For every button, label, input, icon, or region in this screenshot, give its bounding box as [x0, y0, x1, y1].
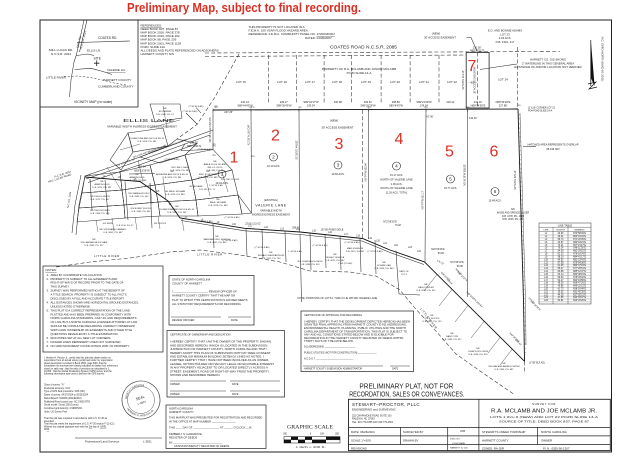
svg-text:PRELIMINARY PLAT, NOT FOR: PRELIMINARY PLAT, NOT FOR [359, 383, 453, 390]
svg-text:N85°12'37"E: N85°12'37"E [573, 271, 587, 273]
svg-text:D.B. 4067, PG. 862: D.B. 4067, PG. 862 [208, 242, 228, 244]
svg-text:VARIABLE WIDTH: VARIABLE WIDTH [260, 209, 282, 213]
svg-text:23.60' (21)'.02': 23.60' (21)'.02' [245, 223, 261, 226]
svg-text:HARNETT COUNTY SUBDIVISION ADM: HARNETT COUNTY SUBDIVISION ADMINISTRATOR [304, 368, 362, 371]
svg-text:S57°21'47"E: S57°21'47"E [573, 245, 587, 247]
svg-text:83.84': 83.84' [438, 252, 445, 255]
svg-text:(7' GP ELF AD): (7' GP ELF AD) [345, 241, 360, 244]
svg-text:43.87: 43.87 [558, 242, 565, 244]
svg-text:BEARING: BEARING [575, 228, 585, 231]
svg-text:L-3821: L-3821 [143, 440, 152, 444]
svg-text:AMMON ELLIS: AMMON ELLIS [130, 176, 145, 179]
svg-text:209.17': 209.17' [280, 100, 289, 104]
svg-text:THIS MAP/PLAT WAS PRESENTED FO: THIS MAP/PLAT WAS PRESENTED FOR REGISTRA… [169, 415, 262, 419]
svg-text:VALERIE LN.: VALERIE LN. [107, 68, 126, 72]
svg-text:N0°7′4″W 531.17': N0°7′4″W 531.17' [422, 190, 425, 209]
svg-text:N31°42'35"E: N31°42'35"E [573, 291, 587, 293]
svg-text:417.03' ALUM CAP: 417.03' ALUM CAP [248, 124, 251, 145]
svg-text:PLAT TO WHICH THIS CERTIFICATI: PLAT TO WHICH THIS CERTIFICATION IS AFFI… [172, 298, 248, 302]
svg-text:I, ______________________ REV: I, ______________________ REVIEW OFFICER… [172, 290, 237, 294]
svg-text:LENGTH: LENGTH [556, 229, 565, 231]
svg-text:2: 2 [271, 128, 280, 145]
svg-text:6: 6 [490, 143, 499, 160]
svg-text:OWNER: OWNER [541, 439, 552, 443]
svg-text:D.B. 3852, PG. 687: D.B. 3852, PG. 687 [104, 232, 124, 234]
svg-text:D.B. 4021, PG 887: D.B. 4021, PG 887 [346, 251, 365, 253]
svg-text:30' ACCESS EASEMENT: 30' ACCESS EASEMENT [322, 126, 354, 130]
svg-text:DWG. NO.: DWG. NO. [450, 439, 461, 441]
svg-text:VICINITY MAP (no scale): VICINITY MAP (no scale) [74, 100, 112, 104]
svg-text:I, Herbert H. Proctor Jr., cer: I, Herbert H. Proctor Jr., certify that … [44, 357, 112, 360]
svg-text:boundaries not surveyed are cl: boundaries not surveyed are clearly indi… [44, 365, 119, 368]
svg-text:D.B. 1346, PG. 502: D.B. 1346, PG. 502 [91, 213, 111, 215]
svg-text:45.86: 45.86 [558, 286, 565, 288]
svg-text:41.73: 41.73 [558, 289, 565, 291]
svg-text:N0°7′4″W 502.64': N0°7′4″W 502.64' [365, 162, 368, 181]
svg-text:S2°51′8″E 575.15': S2°51′8″E 575.15' [514, 170, 517, 190]
svg-text:N72°58'33"E: N72°58'33"E [573, 233, 587, 235]
svg-text:D.B. 893, PG. 86: D.B. 893, PG. 86 [207, 170, 224, 172]
svg-text:N71°22'45"E: N71°22'45"E [573, 239, 587, 241]
svg-text:Units: US Survey Feet: Units: US Survey Feet [44, 410, 67, 413]
svg-text:JESSEY JESSICA: JESSEY JESSICA [326, 256, 345, 259]
svg-text:46.01: 46.01 [558, 236, 565, 238]
svg-text:EIP'S: EIP'S [250, 107, 256, 109]
svg-text:CUMBERLAND COUNTY: CUMBERLAND COUNTY [98, 85, 134, 89]
svg-text:REGISTER OF DEEDS: REGISTER OF DEEDS [169, 435, 197, 439]
svg-text:76.24: 76.24 [558, 248, 565, 250]
svg-text:N74°45′10″E: N74°45′10″E [450, 261, 464, 264]
svg-text:N58°47'26"E: N58°47'26"E [573, 283, 587, 285]
svg-text:59.74: 59.74 [558, 239, 565, 241]
svg-text:38,199 SF±: 38,199 SF± [546, 147, 560, 151]
svg-text:N89°36′18″E: N89°36′18″E [496, 100, 511, 104]
svg-text:ENGINEERING and SURVEYING: ENGINEERING and SURVEYING [352, 408, 396, 412]
svg-text:5: 5 [445, 143, 454, 160]
svg-text:N84°41'17"E: N84°41'17"E [573, 257, 587, 259]
svg-text:DATE: DATE [392, 368, 399, 371]
svg-text:(7' GP ELF AD): (7' GP ELF AD) [255, 246, 270, 249]
svg-text:911 ADDRESSING ______________: 911 ADDRESSING _______________________ [304, 346, 356, 349]
svg-text:N83°13′26″W: N83°13′26″W [134, 168, 150, 172]
svg-text:P.I.N.: 0555-50-1307: P.I.N.: 0555-50-1307 [543, 447, 570, 451]
svg-text:63.14: 63.14 [558, 274, 565, 276]
svg-text:D.B. 1971, PG. 762: D.B. 1971, PG. 762 [423, 321, 443, 323]
svg-text:SOUTH OF VALERIE LANE: SOUTH OF VALERIE LANE [380, 186, 413, 190]
svg-text:209.61': 209.61' [364, 100, 373, 104]
svg-text:1 inch = 200 ft.: 1 inch = 200 ft. [296, 445, 326, 449]
svg-text:NOTE: PORTIONS OF LOTS 1 THRU: NOTE: PORTIONS OF LOTS 1 THRU 6 LIE WITH… [298, 296, 378, 300]
svg-text:D.B. 1985, PG. 660: D.B. 1985, PG. 660 [221, 179, 240, 181]
svg-text:N0°16′19″W 555.00': N0°16′19″W 555.00' [464, 164, 467, 186]
svg-text:61.45: 61.45 [558, 265, 565, 267]
svg-text:60.88: 60.88 [558, 271, 565, 273]
svg-text:RONALD SHEPPARDSON: RONALD SHEPPARDSON [258, 254, 285, 257]
svg-text:RECORDATION, SALES OR CONVEYAN: RECORDATION, SALES OR CONVEYANCES. [349, 392, 464, 399]
svg-text:ED PARKER: ED PARKER [159, 110, 172, 113]
svg-text:30' ACCESS EASEMENT: 30' ACCESS EASEMENT [424, 35, 456, 39]
svg-text:IPS: IPS [212, 155, 216, 157]
svg-text:10.60 ACS.: 10.60 ACS. [331, 172, 344, 176]
svg-text:SURVEY FOR: SURVEY FOR [532, 402, 556, 406]
svg-text:LINE: LINE [544, 229, 549, 231]
svg-text:LITTLE RIVER: LITTLE RIVER [94, 254, 120, 258]
svg-text:JOHNSTONE AND NICOLE ELLIS: JOHNSTONE AND NICOLE ELLIS [130, 137, 164, 140]
svg-text:NORTH CAROLINA: NORTH CAROLINA [541, 430, 567, 434]
svg-text:ASSISTANT/DEPUTY REGISTER OF D: ASSISTANT/DEPUTY REGISTER OF DEEDS [174, 444, 230, 448]
svg-text:(2' & W. CORNER LOT 23: (2' & W. CORNER LOT 23 [528, 108, 556, 110]
svg-text:ELLIS LN.: ELLIS LN. [87, 49, 101, 53]
svg-text:JOHNSTONE AND NICOLE ELLIS: JOHNSTONE AND NICOLE ELLIS [160, 208, 194, 211]
svg-text:NORTH OF VALERIE LANE: NORTH OF VALERIE LANE [380, 177, 413, 181]
svg-text:STEWART'S CREEK TOWNSHIP: STEWART'S CREEK TOWNSHIP [482, 430, 526, 434]
svg-text:TEL. 919 779-1855 FAX 919: TEL. 919 779-1855 FAX 919 779-1661 [352, 421, 394, 424]
svg-text:208.83': 208.83' [392, 100, 401, 104]
svg-text:JOSEPH SOLOMON: JOSEPH SOLOMON [468, 351, 489, 353]
svg-text:N23°23'26"E: N23°23'26"E [573, 300, 587, 302]
svg-text:JO-MCLAMB: JO-MCLAMB [452, 442, 465, 445]
svg-text:Datum/Epoch: NAD83 (201: Datum/Epoch: NAD83 (2011/E2010) [44, 397, 82, 400]
svg-text:OWNER: OWNER [170, 393, 180, 396]
svg-text:11.26 ACS. TOTAL: 11.26 ACS. TOTAL [386, 191, 408, 195]
svg-text:432.13': 432.13' [241, 100, 250, 104]
svg-text:N89°36′11″E: N89°36′11″E [470, 49, 485, 53]
svg-text:LOT 19: LOT 19 [361, 80, 371, 84]
svg-text:2.: 2. [47, 277, 50, 281]
svg-text:62.33: 62.33 [558, 254, 565, 256]
svg-text:DRAWN BY: DRAWN BY [403, 439, 419, 443]
svg-text:noted on said map ; that the r: noted on said map ; that the ratio of pr… [44, 367, 110, 370]
svg-text:SITE: SITE [94, 57, 102, 61]
svg-text:M.B. 2016, PG. 202: M.B. 2016, PG. 202 [503, 218, 525, 221]
svg-text:EXISTENCE OF AND/OR LOCATION N: EXISTENCE OF AND/OR LOCATION NOT VERIFIE… [514, 65, 581, 69]
svg-text:R.A. MCLAMB AND JOE MCLAMB JR.: R.A. MCLAMB AND JOE MCLAMB JR. [491, 409, 597, 415]
svg-text:PC#D SLIDE 14-A: PC#D SLIDE 14-A [347, 71, 372, 75]
svg-text:N/F PHILLIS SMITH: N/F PHILLIS SMITH [90, 196, 110, 198]
svg-text:STATE OF NORTH CAROLINA: STATE OF NORTH CAROLINA [172, 278, 211, 282]
svg-text:2024.: 2024. [44, 429, 50, 431]
svg-text:59.63: 59.63 [558, 277, 565, 279]
svg-text:PART OF: PART OF [399, 270, 409, 273]
svg-text:WILLIAM AND ANNIE FOWLER: WILLIAM AND ANNIE FOWLER [488, 365, 520, 368]
svg-text:SURVEYED BY: SURVEYED BY [403, 430, 424, 434]
svg-text:NOTES:: NOTES: [46, 268, 57, 272]
svg-text:LOT 20: LOT 20 [390, 80, 400, 84]
svg-text:SHOWN AND DESCRIBED HEREON.: SHOWN AND DESCRIBED HEREON. [170, 373, 220, 377]
svg-text:N.C.D.O.T. __________________: N.C.D.O.T. ____________________________ [304, 358, 354, 361]
svg-text:Professional Land Surveyor: Professional Land Surveyor [85, 440, 119, 444]
svg-text:58.10: 58.10 [558, 257, 565, 259]
svg-text:D.B. 3476, PG. 381: D.B. 3476, PG. 381 [163, 177, 183, 179]
svg-text:139.34': 139.34' [307, 104, 316, 108]
svg-text:(EXISTING): (EXISTING) [264, 198, 278, 202]
svg-text:D.B. 2096, PG. 519: D.B. 2096, PG. 519 [469, 354, 489, 356]
svg-text:supervision from an actual sur: supervision from an actual survey perfor… [44, 359, 113, 362]
svg-text:WILLIAM AND ALICE HAIR: WILLIAM AND ALICE HAIR [81, 241, 108, 244]
svg-text:COUNTY OF HARNETT: COUNTY OF HARNETT [172, 282, 202, 286]
svg-text:CERTIFICATE OF APPROVAL FOR: CERTIFICATE OF APPROVAL FOR RECORDING [304, 313, 362, 317]
svg-text:LOT 22: LOT 22 [447, 80, 457, 84]
svg-text:15.49 ACS.: 15.49 ACS. [488, 199, 501, 203]
svg-text:D.B. 1072, PG. 867: D.B. 1072, PG. 867 [91, 199, 111, 201]
svg-text:N80°48'15"E: N80°48'15"E [573, 274, 587, 276]
svg-text:73.02': 73.02' [395, 224, 402, 227]
svg-text:HARNETT 02 200: HARNETT 02 200 [450, 447, 468, 450]
svg-text:ZONED: RA-20R: ZONED: RA-20R [482, 447, 504, 451]
svg-text:HATCHED AREA REPRESENTS OVERLA: HATCHED AREA REPRESENTS OVERLAP [527, 143, 578, 147]
svg-text:LITTLE RIVER: LITTLE RIVER [197, 253, 223, 257]
svg-text:N/F IRA E. MCLAMB: N/F IRA E. MCLAMB [165, 190, 186, 193]
svg-text:(NEW): (NEW) [330, 119, 338, 123]
svg-text:N/F BOBBY WOODS: N/F BOBBY WOODS [131, 208, 152, 210]
svg-text:N/F LINE L GALE: N/F LINE L GALE [171, 166, 189, 169]
svg-text:D.B. 2093, PG. 597: D.B. 2093, PG. 597 [417, 290, 437, 292]
svg-text:S89°21′29″W: S89°21′29″W [416, 100, 432, 104]
svg-text:REVIEW OFFICER: REVIEW OFFICER [172, 318, 194, 322]
svg-text:Published/Fixed-control use:: Published/Fixed-control use: NC GNSS RTN [44, 400, 90, 403]
svg-text:HARNETT COUNTY: HARNETT COUNTY [482, 439, 509, 443]
svg-text:ELLIS LANE: ELLIS LANE [123, 118, 175, 123]
svg-text:7: 7 [468, 58, 477, 75]
svg-text:50.91: 50.91 [558, 300, 565, 302]
svg-text:D.B. 2026, PG. 883: D.B. 2026, PG. 883 [166, 194, 186, 196]
svg-text:amended.: amended. [44, 421, 55, 423]
svg-text:CERTIFICATE OF OWNERSHIP AN: CERTIFICATE OF OWNERSHIP AND DEDICATION [170, 333, 230, 337]
svg-text:Positional accuracy: 0.10': Positional accuracy: 0.10' [44, 387, 71, 390]
svg-text:DATE: 06/26/2024: DATE: 06/26/2024 [351, 430, 375, 434]
svg-text:THIRTY DAYS OF THE DATE BELOW.: THIRTY DAYS OF THE DATE BELOW. [304, 339, 354, 343]
svg-text:S2°51′8″E 210.15': S2°51′8″E 210.15' [462, 70, 465, 90]
svg-text:(7' GP ELF AD): (7' GP ELF AD) [223, 239, 238, 242]
svg-text:Type of GPS field procedure:: Type of GPS field procedure: VRS (NC) [44, 390, 85, 393]
svg-text:HARNETT COUNTY CERTIFY THAT T: HARNETT COUNTY CERTIFY THAT THE MAP OR [172, 294, 235, 298]
svg-text:MAR JOHNSON: MAR JOHNSON [347, 247, 364, 250]
svg-text:D.B. 1095, PG. 67: D.B. 1095, PG. 67 [156, 114, 175, 116]
svg-text:4.: 4. [47, 300, 50, 304]
svg-text:LOT 24: LOT 24 [498, 78, 508, 82]
svg-text:S89°36′43″W: S89°36′43″W [276, 104, 292, 108]
svg-text:N49°22'13"E: N49°22'13"E [573, 286, 587, 288]
svg-text:400.98': 400.98' [334, 100, 343, 104]
svg-text:10.19 ACS.: 10.19 ACS. [267, 164, 280, 168]
svg-text:57.38: 57.38 [558, 262, 565, 264]
svg-text:IN THE OFFICE AT MAP NUMBER __: IN THE OFFICE AT MAP NUMBER ____________… [169, 419, 236, 423]
svg-text:N/F TIMOTHY REID: N/F TIMOTHY REID [90, 210, 110, 212]
svg-text:S89°6′43″W: S89°6′43″W [389, 104, 403, 108]
svg-text:210.01': 210.01' [474, 100, 483, 104]
svg-text:N/F WANDA WOODS: N/F WANDA WOODS [128, 192, 150, 195]
svg-text:NELL G. ELLIS: NELL G. ELLIS [208, 167, 223, 169]
svg-text:55.27: 55.27 [558, 268, 565, 270]
svg-text:N76°18'24"E: N76°18'24"E [573, 254, 587, 256]
svg-text:D.B. 3476, PG. 381: D.B. 3476, PG. 381 [128, 180, 148, 182]
svg-text:Class of survey: "A": Class of survey: "A" [44, 384, 65, 387]
svg-text:That this plat meets the requi: That this plat meets the requirement of … [44, 423, 115, 426]
svg-text:Combined grid factor(s): 0.999: Combined grid factor(s): 0.99987204 [44, 407, 83, 410]
svg-text:(7' GP ELF AD): (7' GP ELF AD) [368, 250, 383, 253]
svg-text:Witness my original signature: Witness my original signature and seal t… [44, 425, 108, 428]
svg-text:D.B. 3476, PG. 381: D.B. 3476, PG. 381 [93, 187, 113, 189]
svg-text:3.: 3. [47, 289, 50, 293]
svg-text:N78°33'42"E: N78°33'42"E [573, 277, 587, 279]
svg-text:SOURCE OF TITLE: DEED BOOK 837: SOURCE OF TITLE: DEED BOOK 837, PAGE 87 [499, 420, 589, 424]
svg-text:S89°34′17″W: S89°34′17″W [303, 100, 319, 104]
svg-text:D.B. 1985, PG. 687: D.B. 1985, PG. 687 [495, 369, 515, 371]
svg-text:1: 1 [230, 150, 239, 167]
svg-text:4: 4 [395, 131, 404, 148]
svg-text:N79°54'28"E: N79°54'28"E [573, 262, 587, 264]
svg-text:LOTS 1 thru 6 (NEW) AND LOT 23: LOTS 1 thru 6 (NEW) AND LOT 23 PC#D SLID… [490, 415, 598, 419]
svg-text:LINE TABLE: LINE TABLE [558, 223, 573, 227]
svg-text:Dates of survey: 04/17/2024: Dates of survey: 04/17/2024 to 05/15/202… [44, 394, 89, 397]
svg-text:8.: 8. [47, 344, 50, 348]
svg-text:D.B. 1985, PG. 660: D.B. 1985, PG. 660 [132, 211, 152, 213]
svg-text:3: 3 [335, 136, 344, 153]
svg-text:23.60: 23.60 [558, 233, 565, 235]
svg-text:PUBLIC UTILITIES (NOT FOR CONS: PUBLIC UTILITIES (NOT FOR CONSTRUCTION) … [304, 352, 377, 355]
svg-text:Geoid model: Geoid 12B (Conu: Geoid model: Geoid 12B (Conus) [44, 405, 79, 407]
svg-text:(7' BF ELF AD): (7' BF ELF AD) [183, 110, 198, 113]
svg-text:That this plat was prepared in: That this plat was prepared in accordanc… [44, 417, 108, 420]
svg-text:D.B. 1130, PG. 52: D.B. 1130, PG. 52 [117, 225, 135, 227]
svg-text:(7' GP ELF AD): (7' GP ELF AD) [313, 244, 328, 247]
svg-text:N/F MCLAMB: N/F MCLAMB [190, 185, 203, 188]
svg-text:ADRIENNE AND NICOLE ELLIS: ADRIENNE AND NICOLE ELLIS [156, 173, 188, 176]
svg-text:N63°19'44"E: N63°19'44"E [573, 236, 587, 238]
svg-text:LOT 18: LOT 18 [332, 80, 342, 84]
svg-text:HARNETT COUNTY GIS: HARNETT COUNTY GIS [141, 52, 175, 56]
svg-text:PO# PC#D SLIDE 14-A: PO# PC#D SLIDE 14-A [528, 110, 553, 113]
svg-text:10,000 ; that the Global Posit: 10,000 ; that the Global Positioning Sys… [44, 370, 112, 373]
svg-text:COATES RD.: COATES RD. [98, 36, 117, 40]
svg-text:1' GP ELF AD: 1' GP ELF AD [209, 184, 223, 187]
svg-text:N77°26'51"E: N77°26'51"E [573, 268, 587, 270]
svg-text:GRAPHIC SCALE: GRAPHIC SCALE [287, 425, 333, 431]
svg-text:REVISIONS: REVISIONS [351, 447, 367, 451]
svg-text:D.B. 2026, PG. 883: D.B. 2026, PG. 883 [209, 205, 229, 207]
svg-text:N89°34′38″E: N89°34′38″E [471, 104, 486, 108]
svg-text:73.31: 73.31 [558, 245, 565, 247]
svg-text:N.C.S.R. 2044: N.C.S.R. 2044 [51, 52, 71, 56]
svg-text:D.B. 902, PG. 17: D.B. 902, PG. 17 [199, 189, 216, 191]
svg-text:N.C. GRID NORTH (NAD 83 2011): N.C. GRID NORTH (NAD 83 2011) [601, 37, 605, 82]
svg-text:following information was used: following information was used to perfor… [44, 373, 105, 376]
svg-text:IRA E. MCLAMB: IRA E. MCLAMB [210, 201, 227, 204]
svg-text:D.B. 1971, PG. 762: D.B. 1971, PG. 762 [262, 258, 282, 260]
svg-text:NORTH CAROLINA: NORTH CAROLINA [169, 407, 193, 411]
svg-text:D.B. 1985, PG. 557: D.B. 1985, PG. 557 [443, 339, 463, 341]
svg-text:KYLE WOODS: KYLE WOODS [425, 318, 440, 320]
svg-text:DATE: DATE [231, 318, 238, 322]
svg-text:67.00′: 67.00′ [427, 115, 434, 119]
svg-text:N38°16'49"E: N38°16'49"E [573, 289, 587, 291]
svg-text:(7' BF ELF AD): (7' BF ELF AD) [198, 148, 213, 151]
svg-text:N81°15'43"E: N81°15'43"E [573, 259, 587, 261]
svg-text:227.88': 227.88' [499, 104, 508, 108]
svg-text:D.B. 2096, PG. 519: D.B. 2096, PG. 519 [301, 264, 321, 266]
svg-text:D.B. 3285, PG. 652: D.B. 3285, PG. 652 [130, 196, 150, 198]
svg-text:LOT 15: LOT 15 [236, 80, 246, 84]
svg-text:15.77 ACS.: 15.77 ACS. [444, 186, 457, 190]
svg-text:AMMON ELLIS: AMMON ELLIS [95, 183, 110, 186]
svg-text:54.09: 54.09 [558, 251, 565, 253]
svg-text:HARNETT COUNTY: HARNETT COUNTY [169, 410, 194, 414]
svg-text:KIMBERLY S. HARGROVE: KIMBERLY S. HARGROVE [169, 432, 202, 436]
svg-text:OWNER: OWNER [170, 383, 180, 386]
svg-text:N82°29'52"E: N82°29'52"E [573, 251, 587, 253]
svg-text:D.B. 4021, PG. 887: D.B. 4021, PG. 887 [326, 260, 346, 262]
svg-text:143.01′: 143.01′ [469, 116, 478, 120]
svg-text:DATE: DATE [232, 393, 239, 396]
svg-text:S2°33′5″E 445.92': S2°33′5″E 445.92' [296, 140, 299, 160]
svg-text:INGRESS-EGRESS EASEMENT: INGRESS-EGRESS EASEMENT [252, 213, 291, 217]
svg-text:247.26′: 247.26′ [224, 110, 233, 114]
svg-text:NO GRID MONUMENT FOUND WITHIN: NO GRID MONUMENT FOUND WITHIN 2000' OF P… [51, 344, 131, 348]
svg-text:1' GP ELF AD: 1' GP ELF AD [288, 250, 302, 253]
svg-text:HARNETT COUNTY: HARNETT COUNTY [103, 78, 131, 82]
svg-text:VALERIE LANE: VALERIE LANE [255, 204, 286, 208]
svg-text:DATED: 01/06/2007: DATED: 01/06/2007 [305, 36, 332, 40]
svg-text:D.B. 2983, PG. 327: D.B. 2983, PG. 327 [85, 245, 105, 247]
svg-text:99.35': 99.35' [457, 265, 464, 268]
svg-text:Preliminary Map, subject to fi: Preliminary Map, subject to final record… [127, 0, 361, 15]
svg-text:15.17 ACS.: 15.17 ACS. [390, 173, 403, 177]
svg-text:LITTLE RIVER: LITTLE RIVER [46, 76, 67, 80]
svg-text:39.52: 39.52 [558, 291, 565, 293]
svg-text:LOT 16: LOT 16 [277, 80, 287, 84]
svg-text:DATE: DATE [232, 383, 239, 386]
svg-text:JOB: JOB [460, 429, 465, 433]
svg-text:LOT 17: LOT 17 [305, 80, 315, 84]
svg-text:N/F STEPHANIE CAMBELL: N/F STEPHANIE CAMBELL [99, 228, 127, 231]
svg-text:LOT 6: LOT 6 [401, 274, 408, 276]
svg-text:LOT 21: LOT 21 [419, 80, 429, 84]
svg-text:ABB A. ELLIS JR. AND: ABB A. ELLIS JR. AND [204, 163, 227, 166]
svg-text:N/F SMITH: N/F SMITH [103, 223, 114, 225]
svg-text:D.B. 1310, 417: D.B. 1310, 417 [496, 40, 515, 44]
svg-text:N23°23′26″E: N23°23′26″E [431, 248, 445, 251]
svg-text:N83°37'19"E: N83°37'19"E [573, 265, 587, 267]
svg-text:44.18: 44.18 [558, 294, 565, 296]
svg-text:64.92: 64.92 [558, 259, 565, 261]
svg-text:N27°55'21"E: N27°55'21"E [573, 294, 587, 296]
svg-text:52.47: 52.47 [558, 280, 565, 282]
svg-text:299.86': 299.86' [292, 226, 300, 229]
svg-text:D.B. 3476, PG. 381: D.B. 3476, PG. 381 [138, 141, 158, 143]
svg-text:N64°19'58"E: N64°19'58"E [573, 280, 587, 282]
svg-text:COATES ROAD N.C.S.R. 2085: COATES ROAD N.C.S.R. 2085 [330, 45, 398, 50]
svg-text:1.09 ACS.: 1.09 ACS. [391, 182, 403, 186]
svg-text:STEWART–PROCTOR, PLLC: STEWART–PROCTOR, PLLC [352, 402, 420, 407]
svg-text:N/F JOSEPH SOLOMON: N/F JOSEPH SOLOMON [298, 261, 323, 263]
svg-text:D.B. 2026, PG. 889: D.B. 2026, PG. 889 [199, 177, 219, 179]
svg-text:NANCY IPB: NANCY IPB [446, 335, 458, 338]
svg-text:47.65: 47.65 [558, 297, 565, 299]
svg-text:5.: 5. [47, 308, 50, 312]
svg-text:157.80 PK/BO DE'LB: 157.80 PK/BO DE'LB [321, 229, 344, 232]
svg-text:DONNIE OAR: DONNIE OAR [377, 264, 391, 267]
svg-text:BY:___________________________: BY:_________________________________ [169, 440, 223, 444]
svg-text:48.29: 48.29 [558, 283, 565, 285]
svg-text:ALL STATUTORY REQUIREMENTS FOR: ALL STATUTORY REQUIREMENTS FOR RECORDING… [172, 302, 242, 306]
svg-text:(deed description recorded in: (deed description recorded in Book 2563,… [44, 362, 107, 365]
svg-text:D.B. 2906, PG. 883: D.B. 2906, PG. 883 [375, 268, 395, 270]
svg-text:407.02' ALUM CAP IPS: 407.02' ALUM CAP IPS [209, 117, 212, 142]
svg-text:(1" BF ELF AD): (1" BF ELF AD) [529, 362, 545, 365]
svg-text:(7' GP ELF AD): (7' GP ELF AD) [225, 216, 240, 219]
svg-text:THIS ____ DAY OF _____________: THIS ____ DAY OF _________________, AT _… [169, 425, 252, 429]
svg-text:D.B. 3476, PG. 381: D.B. 3476, PG. 381 [168, 212, 188, 214]
